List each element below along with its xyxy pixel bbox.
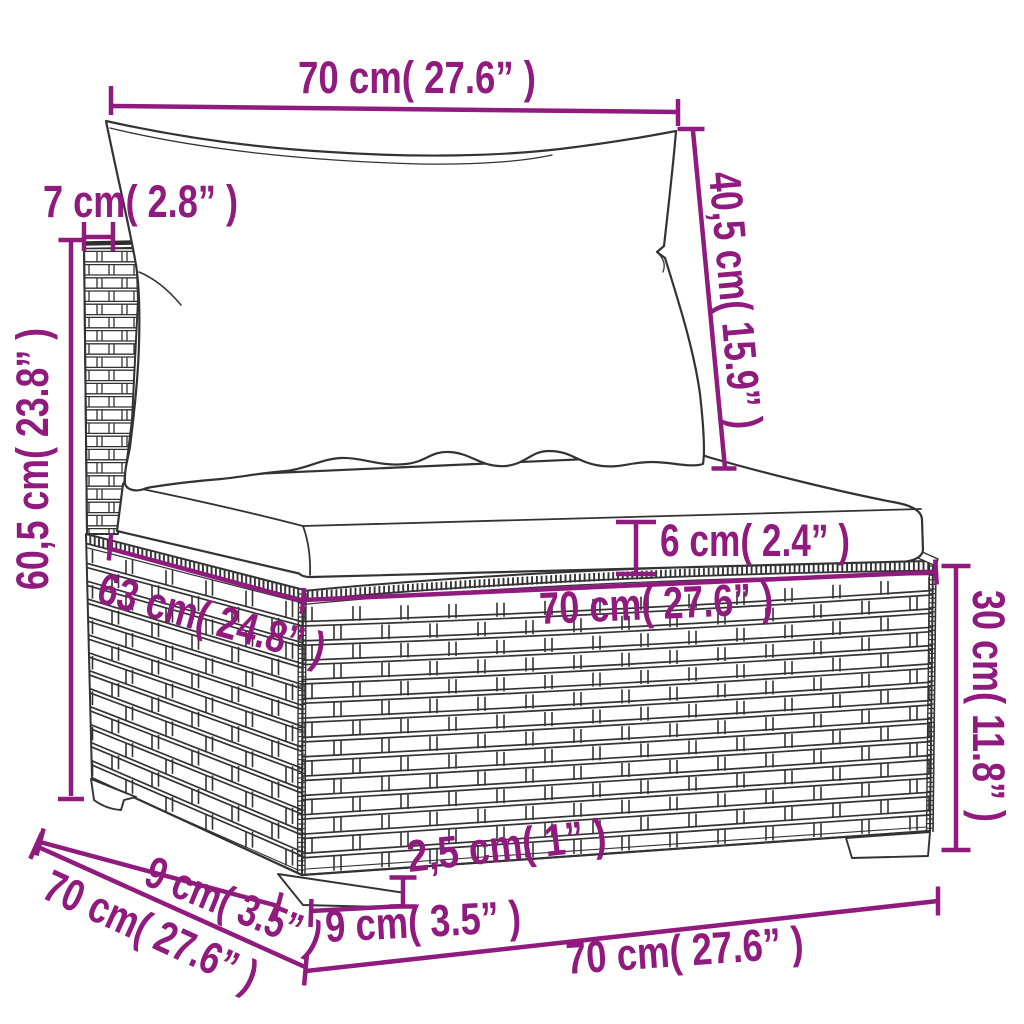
svg-text:70 cm( 27.6” ): 70 cm( 27.6” ) bbox=[298, 52, 536, 103]
svg-text:7 cm( 2.8” ): 7 cm( 2.8” ) bbox=[43, 176, 238, 227]
svg-text:30 cm( 11.8” ): 30 cm( 11.8” ) bbox=[963, 590, 1014, 822]
svg-text:9 cm( 3.5” ): 9 cm( 3.5” ) bbox=[324, 891, 522, 952]
svg-text:70 cm( 27.6” ): 70 cm( 27.6” ) bbox=[538, 573, 774, 634]
svg-text:6 cm( 2.4” ): 6 cm( 2.4” ) bbox=[660, 515, 850, 566]
svg-text:60,5 cm( 23.8” ): 60,5 cm( 23.8” ) bbox=[7, 328, 58, 590]
